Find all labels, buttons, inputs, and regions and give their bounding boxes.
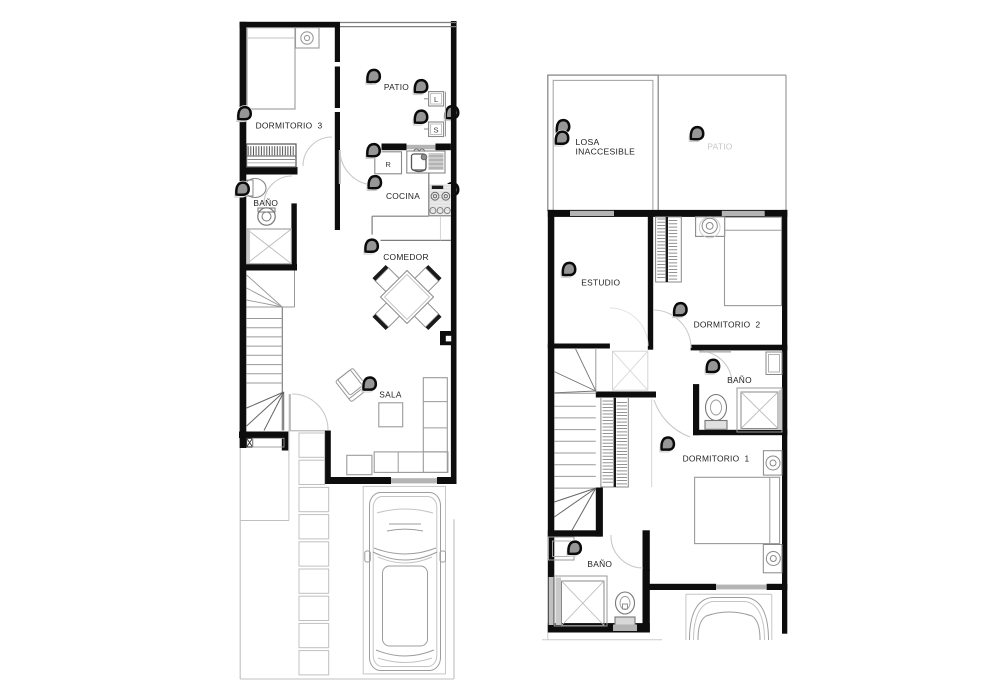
svg-text:R: R (385, 160, 391, 169)
svg-text:DORMITORIO 3: DORMITORIO 3 (256, 120, 323, 130)
svg-text:PATIO: PATIO (707, 142, 732, 152)
svg-text:SALA: SALA (379, 389, 402, 399)
svg-text:INACCESIBLE: INACCESIBLE (576, 146, 636, 156)
svg-text:BAÑO: BAÑO (727, 375, 752, 385)
svg-text:BAÑO: BAÑO (587, 559, 612, 569)
svg-text:ESTUDIO: ESTUDIO (581, 278, 620, 288)
svg-text:BAÑO: BAÑO (253, 198, 278, 208)
svg-text:DORMITORIO 1: DORMITORIO 1 (683, 453, 750, 463)
svg-text:COMEDOR: COMEDOR (383, 252, 429, 262)
svg-text:DORMITORIO 2: DORMITORIO 2 (694, 319, 761, 329)
svg-text:LOSA: LOSA (576, 137, 600, 147)
svg-text:L: L (434, 95, 438, 104)
svg-text:PATIO: PATIO (384, 82, 409, 92)
svg-text:S: S (434, 126, 439, 135)
svg-text:COCINA: COCINA (386, 191, 420, 201)
